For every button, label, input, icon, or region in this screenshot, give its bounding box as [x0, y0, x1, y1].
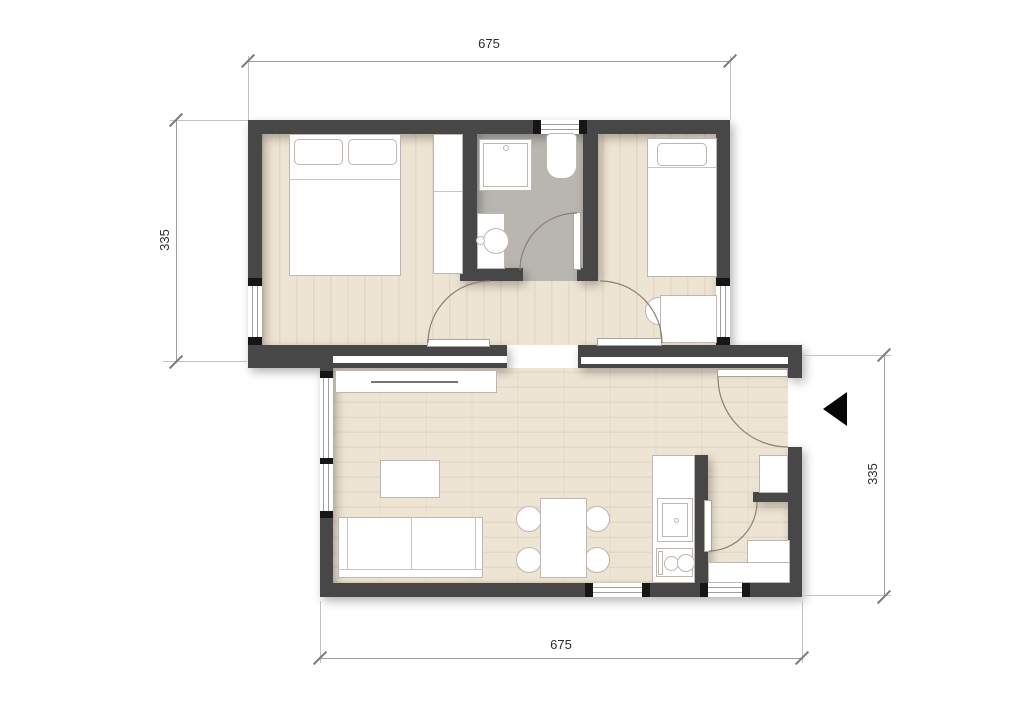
- extension-line: [170, 120, 248, 121]
- entrance-arrow-icon: [823, 392, 847, 426]
- floor-plan: 675 675 335 335: [0, 0, 1018, 720]
- bedroom-left-door-arc: [428, 281, 490, 343]
- dimension-line-top: [248, 61, 731, 62]
- dimension-line-right: [884, 355, 885, 597]
- dimension-label-bottom: 675: [539, 637, 583, 653]
- storage-door-arc: [709, 502, 757, 551]
- entrance-door-arc: [718, 377, 788, 447]
- dimension-label-left: 335: [157, 218, 173, 262]
- dimension-label-right: 335: [865, 452, 881, 496]
- extension-line: [803, 355, 891, 356]
- extension-line: [802, 601, 803, 663]
- extension-line: [248, 56, 249, 120]
- dimension-line-bottom: [320, 658, 803, 659]
- bedroom-right-door-arc: [600, 281, 662, 343]
- bathroom-door-arc: [520, 213, 577, 270]
- extension-line: [730, 56, 731, 120]
- extension-line: [320, 601, 321, 663]
- dimension-label-top: 675: [467, 36, 511, 52]
- extension-line: [803, 595, 891, 596]
- dimension-line-left: [176, 120, 177, 362]
- door-arcs-layer: [0, 0, 1018, 720]
